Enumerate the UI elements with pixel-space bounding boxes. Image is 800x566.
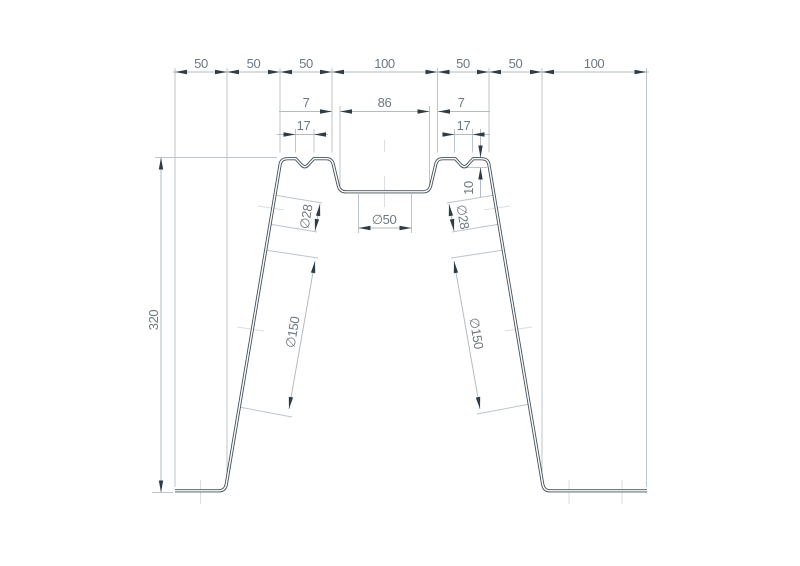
arrowhead: [359, 226, 371, 230]
dim-label-hole-150-left: ∅150: [283, 315, 303, 349]
arrowhead: [315, 219, 319, 231]
arrowhead: [418, 109, 430, 113]
dim-label-opening-7-right: 7: [458, 95, 465, 110]
arrowhead: [159, 158, 163, 170]
extension-line-hole150-right-a: [451, 250, 504, 258]
arrowhead: [400, 226, 412, 230]
dim-label-top-100-2: 100: [584, 56, 605, 71]
arrowhead: [438, 109, 450, 113]
arrowhead: [477, 70, 489, 74]
arrowhead: [454, 261, 458, 273]
arrowhead: [476, 397, 480, 409]
arrowhead: [175, 70, 187, 74]
arrowhead: [320, 109, 332, 113]
extension-lines: [152, 68, 647, 493]
dim-label-hole-28-right: ∅28: [454, 203, 473, 230]
dim-label-top-50-4: 50: [456, 56, 470, 71]
dim-label-height-320: 320: [146, 310, 161, 331]
drawing-canvas: 50 50 50 100 50 50 100 7 86 7 17 17 10 3…: [0, 0, 800, 566]
arrowhead: [450, 219, 454, 231]
dimension-labels: 50 50 50 100 50 50 100 7 86 7 17 17 10 3…: [146, 56, 604, 350]
arrowhead: [280, 70, 292, 74]
arrowhead: [316, 204, 320, 216]
dim-label-top-50-1: 50: [194, 56, 208, 71]
arrowhead: [635, 70, 647, 74]
dim-label-center-hole-50: ∅50: [372, 212, 397, 227]
dim-label-top-100-1: 100: [374, 56, 395, 71]
dim-label-top-50-3: 50: [299, 56, 313, 71]
arrowhead: [478, 146, 482, 158]
dim-label-top-50-2: 50: [247, 56, 261, 71]
arrowhead: [227, 70, 239, 74]
dim-label-top-50-5: 50: [509, 56, 523, 71]
arrowhead: [473, 132, 485, 136]
arrowhead: [311, 261, 315, 273]
extension-line-hole150-right-b: [477, 404, 530, 414]
arrowhead: [332, 70, 344, 74]
arrowhead: [159, 481, 163, 493]
arrowhead: [284, 132, 296, 136]
dim-label-hole-28-left: ∅28: [297, 203, 316, 230]
arrowhead: [215, 70, 227, 74]
extension-line-hole150-left-b: [239, 407, 292, 417]
arrowhead: [314, 132, 326, 136]
arrowhead: [289, 397, 293, 409]
arrowhead: [542, 70, 554, 74]
centerline-lower-hole-right: [505, 327, 532, 331]
arrowhead: [478, 168, 482, 180]
centerline-lower-hole-left: [237, 327, 264, 331]
arrowhead: [340, 109, 352, 113]
dim-label-opening-86: 86: [378, 95, 392, 110]
arrowhead: [443, 132, 455, 136]
technical-drawing: 50 50 50 100 50 50 100 7 86 7 17 17 10 3…: [0, 0, 800, 566]
arrowhead: [268, 70, 280, 74]
dim-label-hole-150-right: ∅150: [466, 317, 486, 351]
arrowheads: [159, 70, 647, 493]
dim-label-notch-depth-10: 10: [461, 181, 476, 195]
arrowhead: [449, 204, 453, 216]
dim-label-opening-7-left: 7: [303, 95, 310, 110]
arrowhead: [438, 70, 450, 74]
arrowhead: [320, 70, 332, 74]
extension-line-hole28-left-a: [274, 195, 322, 203]
extension-line-hole150-left-a: [265, 250, 318, 258]
dim-label-notch-17-left: 17: [297, 118, 311, 133]
arrowhead: [530, 70, 542, 74]
arrowhead: [426, 70, 438, 74]
dim-label-notch-17-right: 17: [457, 118, 471, 133]
extension-line-hole28-right-a: [447, 195, 495, 203]
arrowhead: [489, 70, 501, 74]
